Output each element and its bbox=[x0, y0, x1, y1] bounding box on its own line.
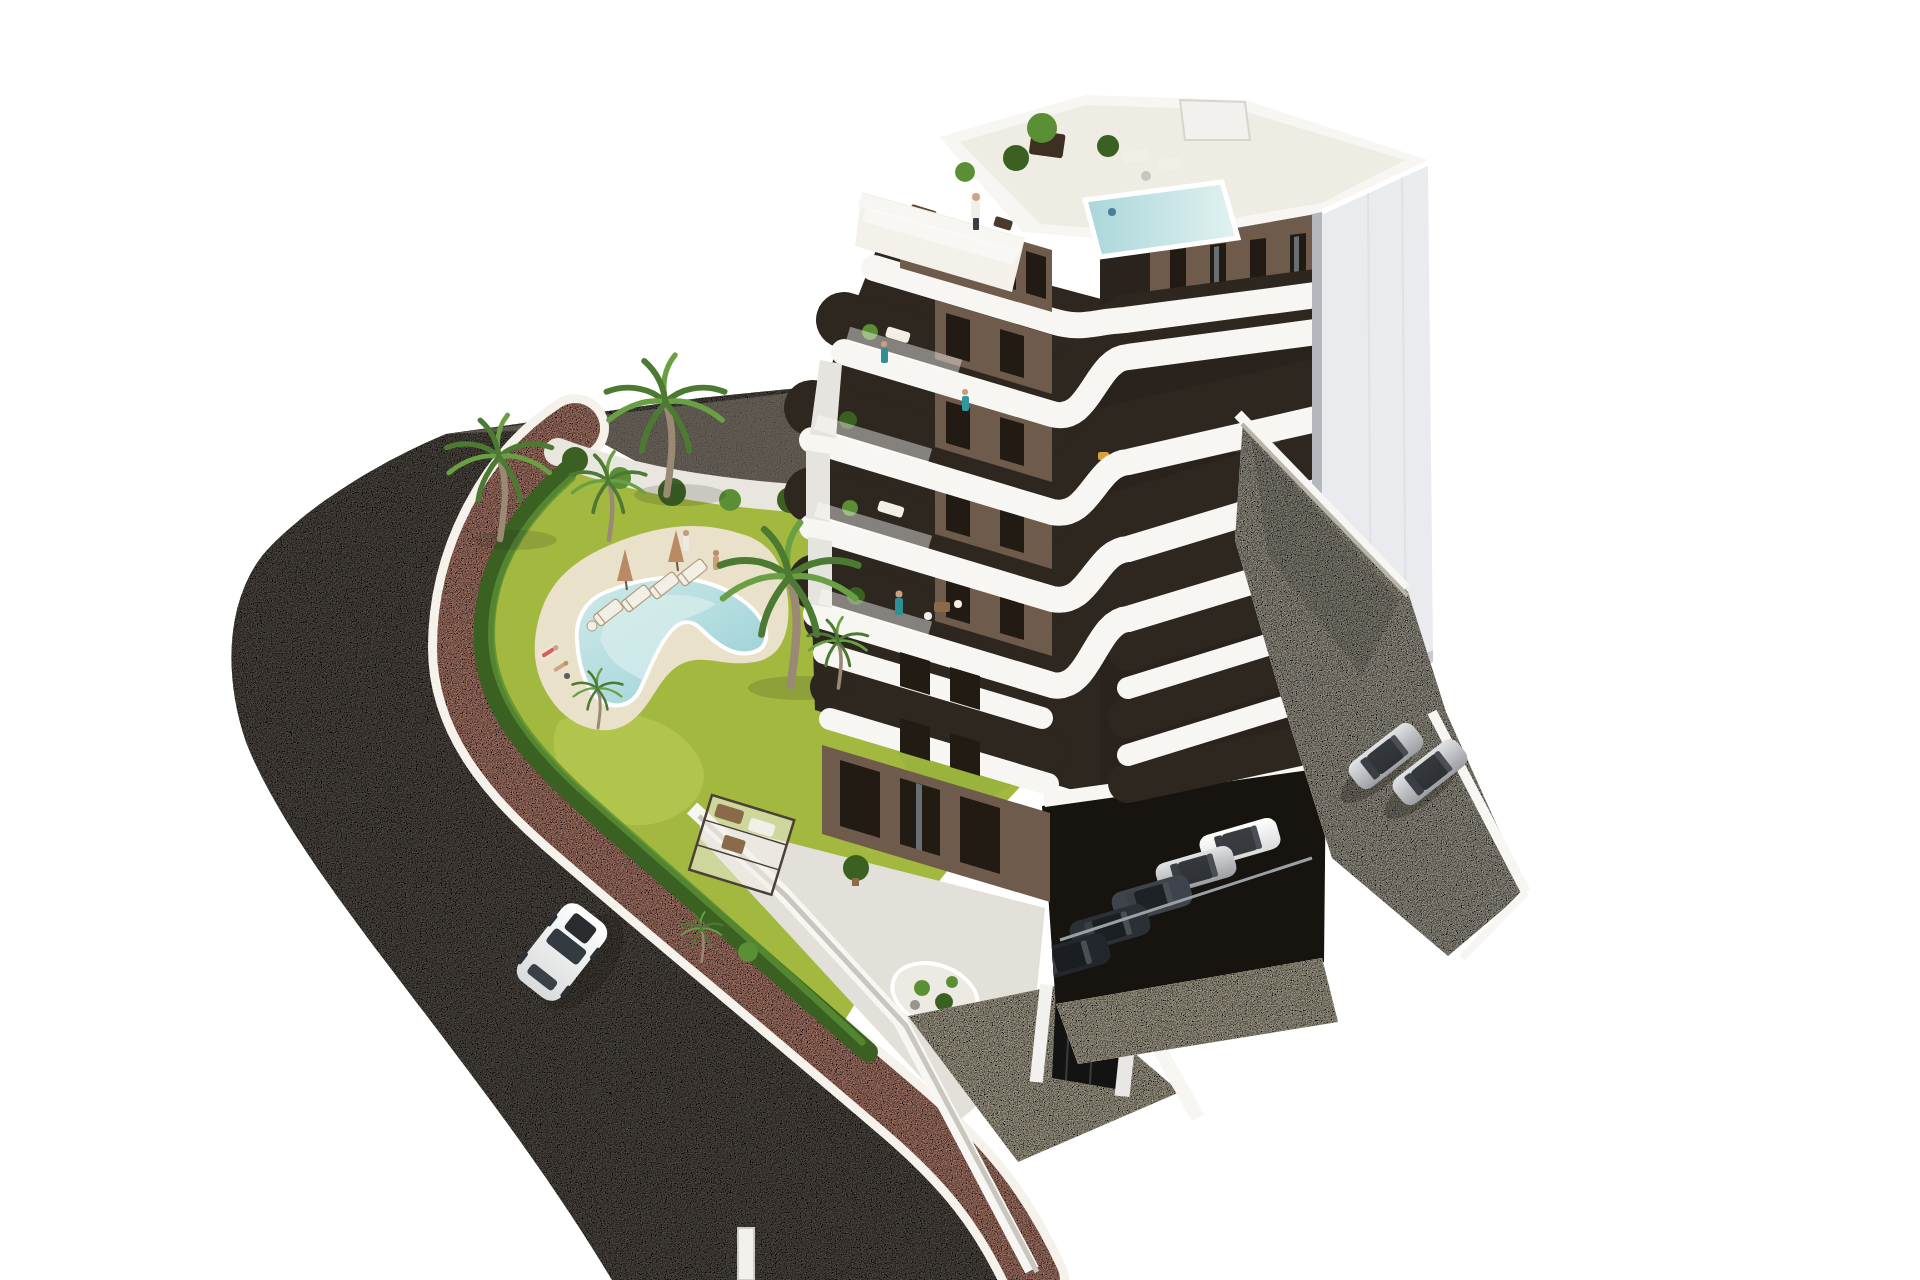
terrace-plant bbox=[738, 942, 758, 962]
pool-bag bbox=[564, 673, 570, 679]
palm-shadow bbox=[634, 484, 726, 506]
garage bbox=[1027, 760, 1338, 1064]
person-in-rooftop-pool bbox=[1108, 208, 1116, 216]
render-canvas bbox=[0, 0, 1920, 1280]
architectural-render bbox=[0, 0, 1920, 1280]
person-balcony-f3 bbox=[962, 389, 969, 411]
roof-bulkhead bbox=[1180, 100, 1250, 140]
terrace-tree bbox=[843, 855, 869, 881]
palm-shadow bbox=[473, 530, 557, 550]
person-standing-1 bbox=[683, 530, 689, 551]
person-balcony-f2 bbox=[881, 341, 888, 363]
palm-shadow bbox=[748, 676, 852, 700]
boundary-post bbox=[738, 1228, 754, 1280]
terrace-tree-pot bbox=[852, 878, 859, 886]
